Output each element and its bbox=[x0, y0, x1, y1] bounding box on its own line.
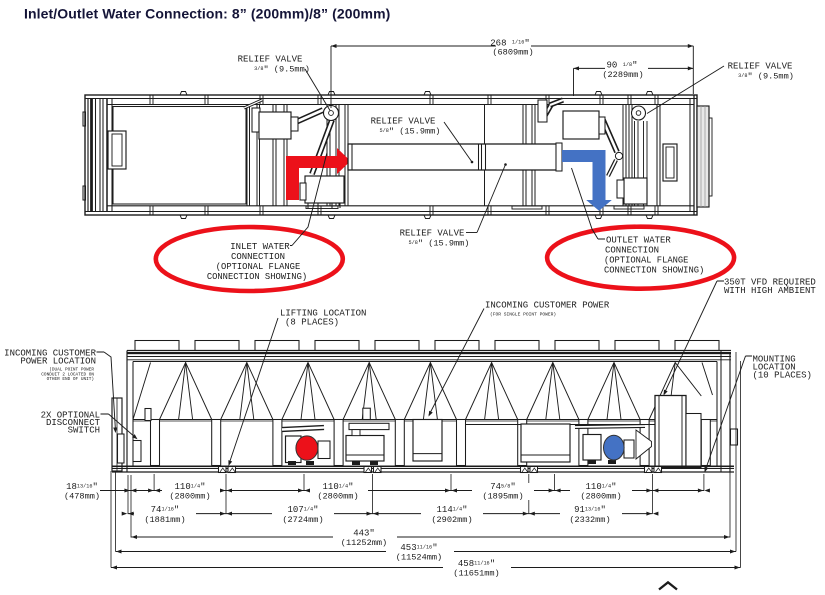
svg-text:(OPTIONAL FLANGE: (OPTIONAL FLANGE bbox=[216, 262, 300, 272]
svg-text:1101/4": 1101/4" bbox=[323, 482, 354, 492]
svg-text:(OPTIONAL FLANGE: (OPTIONAL FLANGE bbox=[604, 255, 688, 265]
svg-text:(1881mm): (1881mm) bbox=[144, 515, 185, 525]
svg-text:(478mm): (478mm) bbox=[64, 492, 100, 502]
svg-text:RELIEF VALVE: RELIEF VALVE bbox=[400, 229, 465, 239]
svg-text:(2800mm): (2800mm) bbox=[317, 492, 358, 502]
svg-text:(2902mm): (2902mm) bbox=[431, 515, 472, 525]
svg-text:RELIEF VALVE: RELIEF VALVE bbox=[371, 117, 436, 127]
svg-text:1101/4": 1101/4" bbox=[175, 482, 206, 492]
svg-text:(2289mm): (2289mm) bbox=[602, 70, 643, 80]
svg-text:(2724mm): (2724mm) bbox=[282, 515, 323, 525]
svg-text:1141/4": 1141/4" bbox=[437, 505, 468, 515]
svg-text:(8 PLACES): (8 PLACES) bbox=[285, 318, 339, 328]
svg-text:RELIEF VALVE: RELIEF VALVE bbox=[238, 55, 303, 65]
svg-text:(1895mm): (1895mm) bbox=[482, 492, 523, 502]
svg-text:RELIEF VALVE: RELIEF VALVE bbox=[728, 62, 793, 72]
svg-text:(11252mm): (11252mm) bbox=[341, 538, 387, 548]
svg-text:INLET WATER: INLET WATER bbox=[230, 242, 290, 252]
svg-text:5/8" (15.9mm): 5/8" (15.9mm) bbox=[380, 127, 441, 137]
svg-text:1071/4": 1071/4" bbox=[288, 505, 319, 515]
svg-text:OUTLET WATER: OUTLET WATER bbox=[606, 235, 671, 245]
svg-text:SWITCH: SWITCH bbox=[68, 425, 100, 435]
svg-text:CONNECTION SHOWING): CONNECTION SHOWING) bbox=[604, 265, 704, 275]
svg-text:443": 443" bbox=[353, 528, 375, 538]
svg-text:POWER LOCATION: POWER LOCATION bbox=[20, 357, 96, 367]
svg-text:5/8" (15.9mm): 5/8" (15.9mm) bbox=[409, 239, 470, 249]
svg-text:CONNECTION: CONNECTION bbox=[231, 252, 285, 262]
svg-text:(11651mm): (11651mm) bbox=[453, 569, 499, 579]
svg-text:CONNECTION: CONNECTION bbox=[605, 245, 659, 255]
svg-text:Inlet/Outlet Water Connection:: Inlet/Outlet Water Connection: 8” (200mm… bbox=[24, 6, 390, 22]
svg-text:1813/16": 1813/16" bbox=[66, 482, 98, 492]
svg-text:(6809mm): (6809mm) bbox=[492, 48, 533, 58]
svg-text:CONNECTION SHOWING): CONNECTION SHOWING) bbox=[207, 272, 307, 282]
svg-text:(2800mm): (2800mm) bbox=[169, 492, 210, 502]
svg-text:(FOR SINGLE POINT POWER): (FOR SINGLE POINT POWER) bbox=[490, 312, 556, 318]
svg-text:1101/4": 1101/4" bbox=[586, 482, 617, 492]
svg-text:(2332mm): (2332mm) bbox=[569, 515, 610, 525]
svg-text:3/8" (9.5mm): 3/8" (9.5mm) bbox=[254, 65, 310, 75]
svg-text:(2800mm): (2800mm) bbox=[580, 492, 621, 502]
svg-text:INCOMING CUSTOMER POWER: INCOMING CUSTOMER POWER bbox=[485, 301, 610, 311]
svg-text:OTHER END OF UNIT): OTHER END OF UNIT) bbox=[47, 377, 94, 382]
svg-text:3/8" (9.5mm): 3/8" (9.5mm) bbox=[738, 72, 794, 82]
svg-text:(10 PLACES): (10 PLACES) bbox=[753, 371, 812, 381]
svg-text:WITH HIGH AMBIENT: WITH HIGH AMBIENT bbox=[724, 286, 816, 296]
svg-text:(11524mm): (11524mm) bbox=[396, 553, 442, 563]
